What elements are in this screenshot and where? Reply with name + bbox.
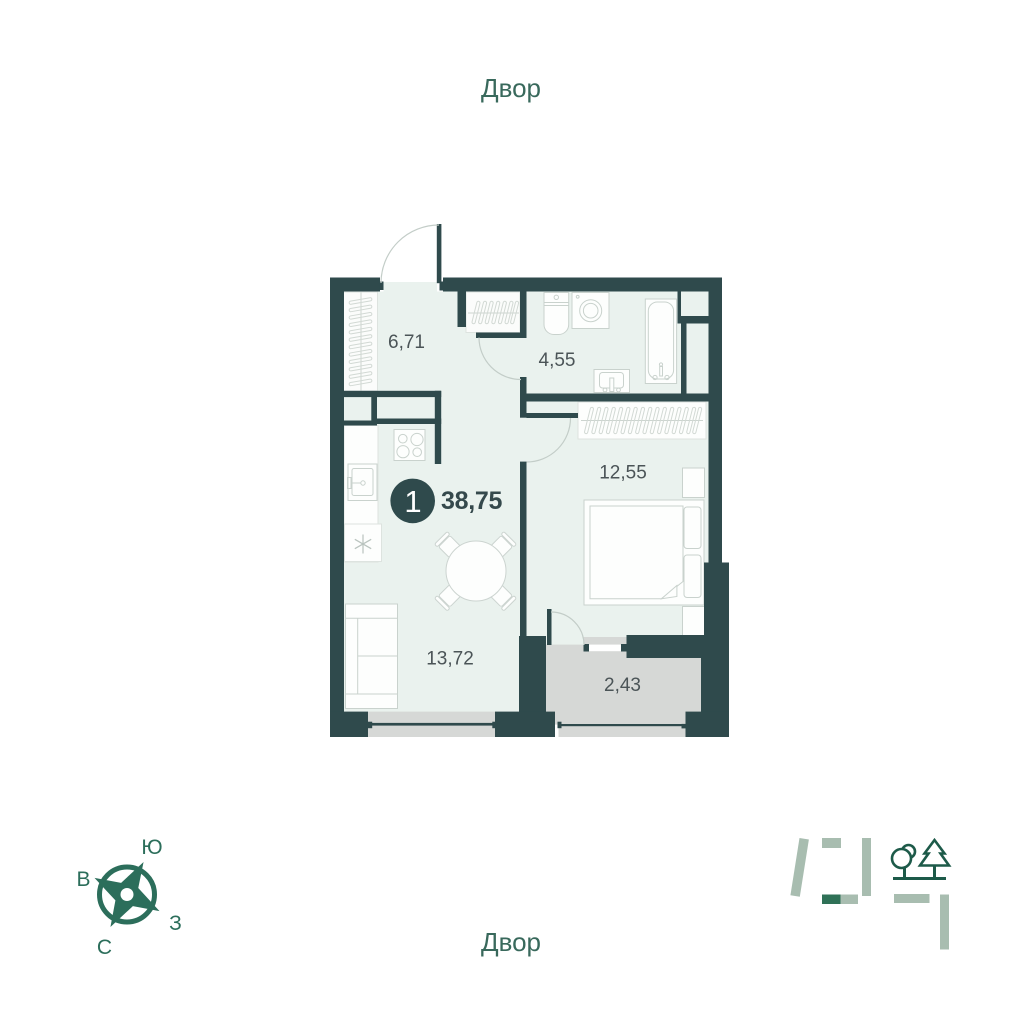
svg-text:Двор: Двор (481, 927, 541, 957)
svg-text:12,55: 12,55 (599, 463, 647, 484)
svg-text:Двор: Двор (481, 73, 541, 103)
svg-text:6,71: 6,71 (388, 332, 425, 353)
svg-text:1: 1 (404, 484, 421, 519)
svg-text:Ю: Ю (141, 836, 162, 859)
svg-text:2,43: 2,43 (604, 675, 641, 696)
svg-text:13,72: 13,72 (426, 649, 474, 670)
svg-text:38,75: 38,75 (441, 487, 502, 515)
svg-text:З: З (169, 912, 182, 935)
svg-text:4,55: 4,55 (539, 350, 576, 371)
svg-text:С: С (97, 936, 112, 959)
svg-text:В: В (76, 868, 90, 891)
